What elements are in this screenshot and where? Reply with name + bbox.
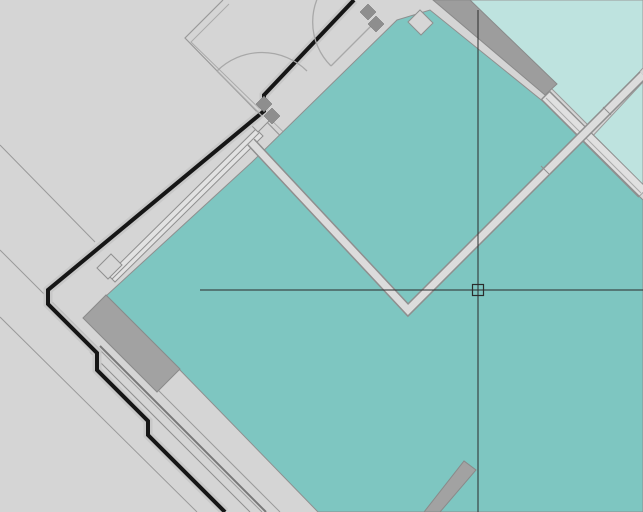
cad-viewport[interactable] [0,0,643,512]
floor-plan-canvas[interactable] [0,0,643,512]
